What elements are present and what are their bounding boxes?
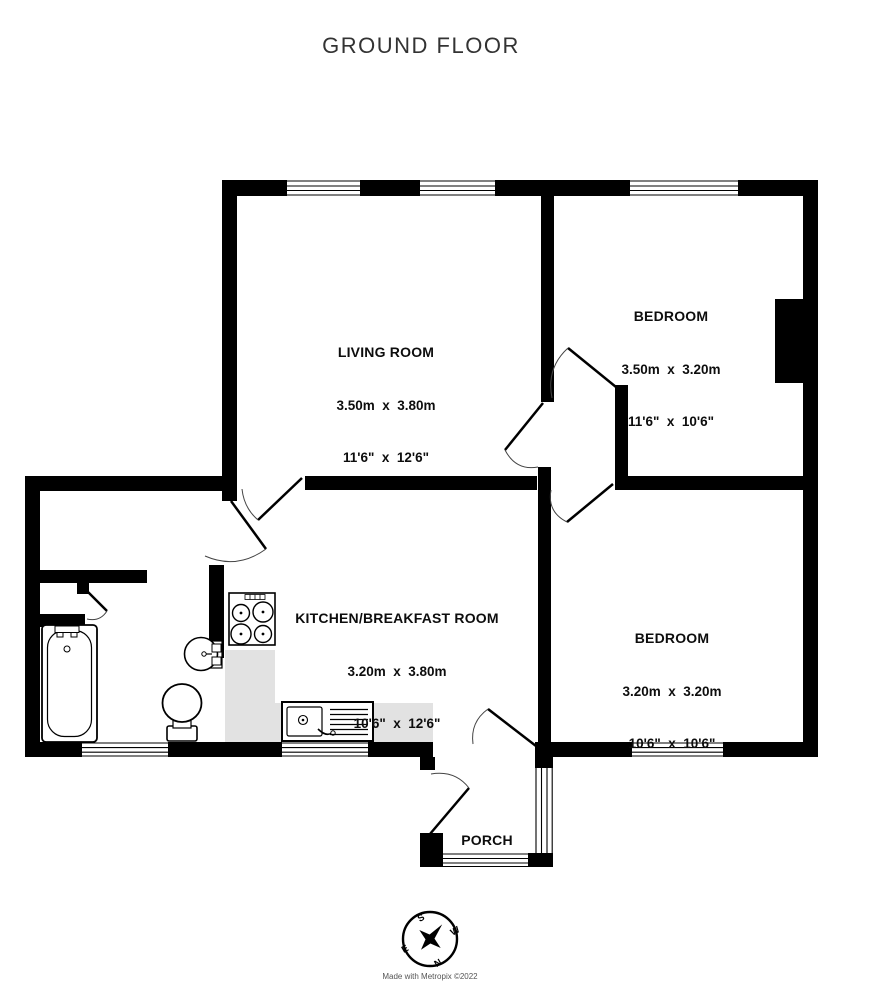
window-bedroom1 bbox=[630, 180, 738, 196]
chimney-breast bbox=[775, 299, 805, 383]
porch-corner-bottom-right bbox=[528, 853, 553, 867]
window-bathroom bbox=[82, 742, 168, 757]
window-living-2 bbox=[420, 180, 495, 196]
arc-kitchen-hall bbox=[205, 549, 266, 562]
toilet-icon bbox=[163, 684, 202, 741]
door-bedroom1-leaf bbox=[568, 348, 616, 387]
window-living-1 bbox=[287, 180, 360, 196]
door-bathroom-leaf bbox=[84, 588, 107, 611]
room-name: KITCHEN/BREAKFAST ROOM bbox=[295, 610, 499, 628]
bedroom2-label: BEDROOM 3.20m x 3.20m 10'6" x 10'6" bbox=[622, 595, 721, 788]
door-living-kitchen-leaf bbox=[258, 478, 302, 520]
room-dims-imperial: 10'6" x 12'6" bbox=[295, 715, 499, 733]
credit-text: Made with Metropix ©2022 bbox=[382, 972, 477, 981]
room-dims-metric: 3.50m x 3.20m bbox=[621, 361, 720, 379]
room-dims-metric: 3.20m x 3.80m bbox=[295, 663, 499, 681]
room-name: BEDROOM bbox=[621, 308, 720, 326]
floorplan-page: GROUND FLOOR bbox=[0, 0, 886, 992]
room-dims-metric: 3.50m x 3.80m bbox=[336, 397, 435, 415]
room-name: BEDROOM bbox=[622, 630, 721, 648]
hob-icon bbox=[229, 593, 275, 645]
door-hall-kitchen-leaf bbox=[505, 403, 543, 450]
wall-hall-bottom bbox=[38, 570, 147, 583]
arc-bathroom bbox=[87, 611, 107, 620]
porch-jamb-right bbox=[535, 757, 553, 768]
basin-icon bbox=[185, 638, 223, 671]
kitchen-label: KITCHEN/BREAKFAST ROOM 3.20m x 3.80m 10'… bbox=[295, 575, 499, 768]
room-dims-imperial: 11'6" x 12'6" bbox=[336, 449, 435, 467]
wall-left-upper bbox=[222, 180, 237, 501]
bathtub-icon bbox=[42, 625, 97, 742]
wall-extension-left bbox=[25, 476, 40, 757]
wall-right bbox=[803, 180, 818, 757]
wall-mid-right bbox=[615, 476, 807, 490]
arc-porch-front bbox=[431, 773, 469, 788]
room-name: LIVING ROOM bbox=[336, 344, 435, 362]
porch-corner-bottom-left bbox=[420, 833, 443, 867]
window-porch-right bbox=[535, 768, 553, 853]
wall-living-bedroom-divider bbox=[541, 196, 554, 402]
floor-plan-drawing: S W N E bbox=[0, 0, 886, 992]
porch-label: PORCH bbox=[461, 797, 513, 885]
room-name: PORCH bbox=[461, 832, 513, 850]
bedroom1-label: BEDROOM 3.50m x 3.20m 11'6" x 10'6" bbox=[621, 273, 720, 466]
room-dims-imperial: 11'6" x 10'6" bbox=[621, 413, 720, 431]
wall-extension-top bbox=[25, 476, 237, 491]
arc-bedroom2 bbox=[550, 490, 567, 522]
arc-hall-kitchen bbox=[505, 450, 538, 468]
wall-kitchen-bedroom-divider bbox=[538, 467, 551, 742]
compass: S W N E bbox=[400, 912, 462, 970]
door-bedroom2-leaf bbox=[567, 484, 613, 522]
arc-living-kitchen bbox=[242, 489, 258, 520]
room-dims-metric: 3.20m x 3.20m bbox=[622, 683, 721, 701]
living-room-label: LIVING ROOM 3.50m x 3.80m 11'6" x 12'6" bbox=[336, 309, 435, 502]
room-dims-imperial: 10'6" x 10'6" bbox=[622, 735, 721, 753]
